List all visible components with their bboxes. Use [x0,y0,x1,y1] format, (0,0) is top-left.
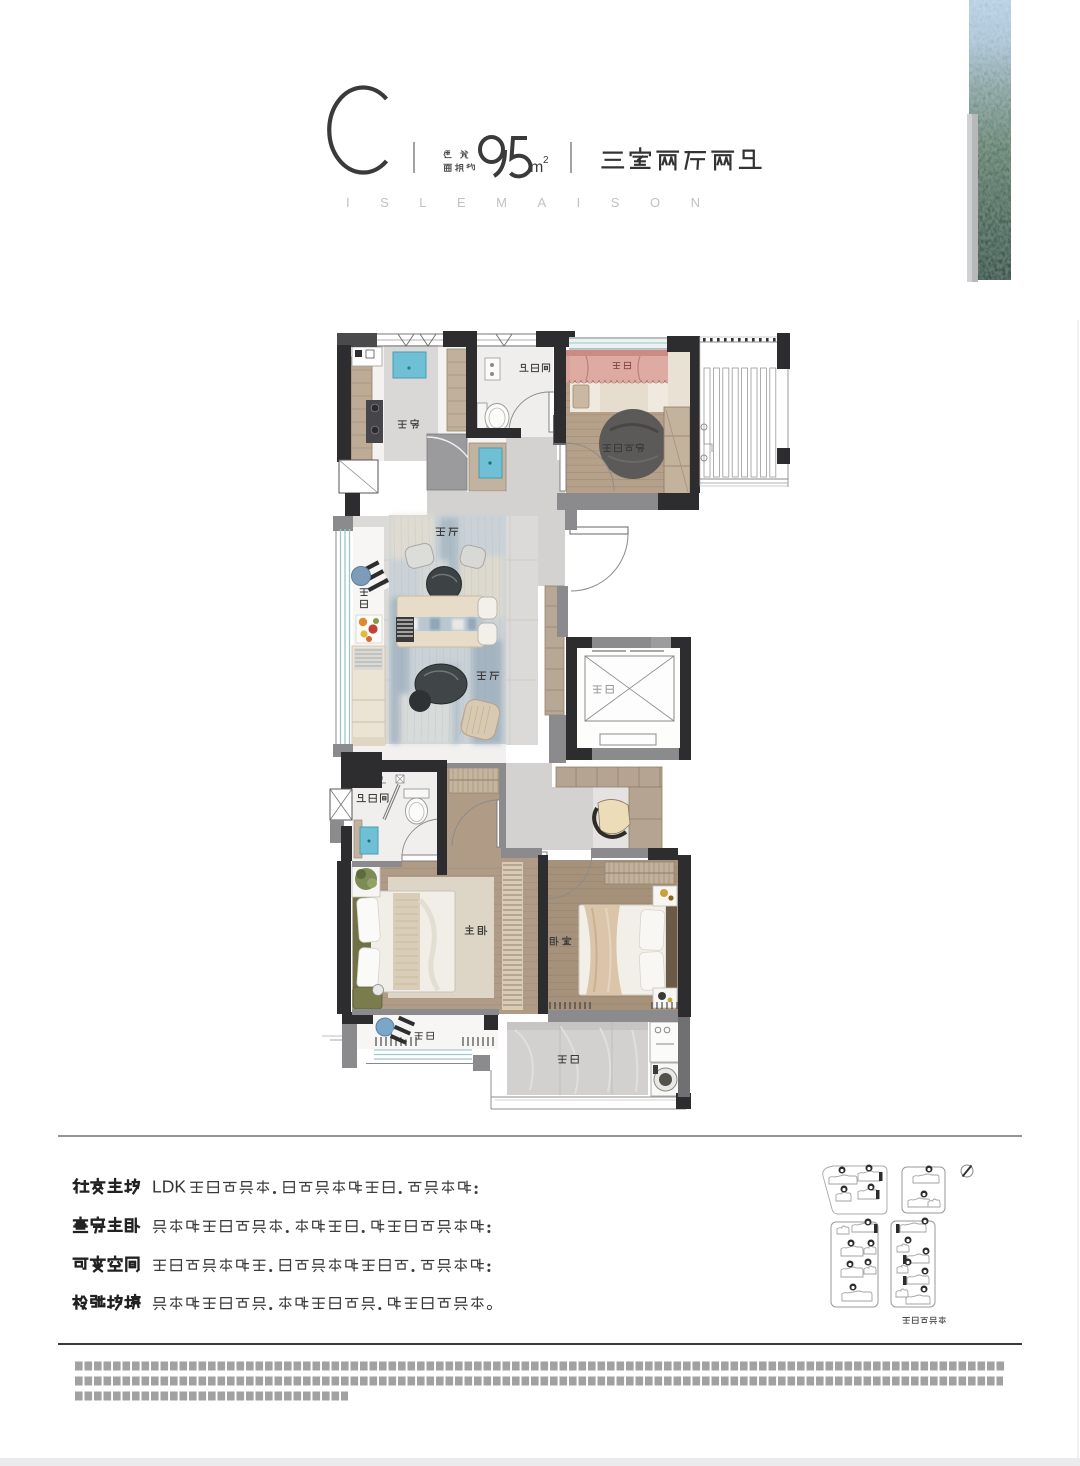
svg-text:m: m [530,159,543,176]
svg-text:2: 2 [543,155,549,166]
svg-text:LDK: LDK [152,1177,186,1197]
svg-text:ISLEMAISON: ISLEMAISON [346,195,730,210]
